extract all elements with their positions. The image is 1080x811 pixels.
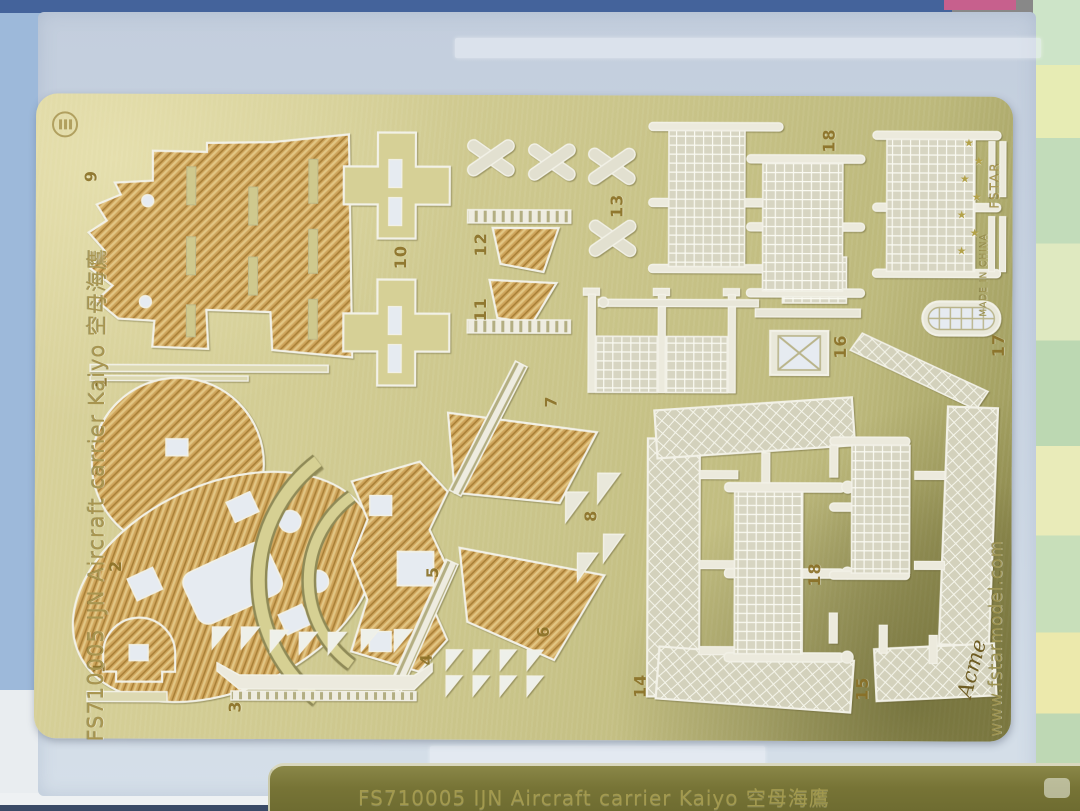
fabric-right-green-yellow [1033, 0, 1080, 811]
part-number-label: 8 [581, 510, 600, 522]
star-icon: ★ [957, 245, 967, 258]
star-icon: ★ [972, 191, 982, 204]
fabric-top-pink [944, 0, 1016, 10]
part-number-label: 14 [631, 674, 650, 698]
part-number-label: 5 [423, 566, 442, 578]
star-icon: ★ [957, 209, 967, 222]
star-icon: ★ [970, 227, 980, 240]
part-number-label: 9 [81, 170, 100, 182]
brand-url-text: www.fstarmodel.com [986, 540, 1007, 737]
photo-scene: 9 1 10 12 11 13 18 16 17 7 8 5 2 6 1 3 4… [0, 0, 1080, 811]
part-number-label: 18 [805, 562, 824, 586]
tape-strip-top [455, 38, 1041, 58]
part-number-label: 10 [391, 245, 410, 269]
part-number-label: 11 [471, 297, 490, 321]
part-number-label: 13 [607, 194, 626, 218]
part-number-label: 4 [417, 653, 436, 665]
star-icon: ★ [974, 155, 984, 168]
part-number-label: 6 [534, 625, 553, 637]
brand-name-text: FSTAR [988, 161, 1002, 208]
star-icon: ★ [960, 173, 970, 186]
manufacturer-stamp-icon [52, 111, 78, 137]
second-fret-corner-tab [1044, 778, 1070, 798]
star-icon: ★ [964, 137, 974, 150]
part-number-label: 16 [831, 334, 850, 358]
part-number-label: 7 [542, 395, 561, 407]
pe-fret-main: 9 1 10 12 11 13 18 16 17 7 8 5 2 6 1 3 4… [34, 93, 1013, 741]
part-number-label: 15 [853, 677, 872, 701]
made-in-text: MADE IN CHINA [979, 233, 989, 316]
part-number-label: 3 [226, 700, 245, 712]
part-number-label: 18 [820, 128, 839, 152]
part-number-label: 17 [989, 333, 1008, 357]
fret-title-text: FS710005 IJN Aircraft carrier Kaiyo 空母海鷹 [80, 248, 112, 742]
etched-parts-graphic [34, 93, 1013, 741]
second-fret-title-text: FS710005 IJN Aircraft carrier Kaiyo 空母海鷹 [358, 782, 830, 811]
part-number-label: 12 [471, 232, 490, 256]
pe-fret-second: FS710005 IJN Aircraft carrier Kaiyo 空母海鷹 [268, 763, 1080, 811]
